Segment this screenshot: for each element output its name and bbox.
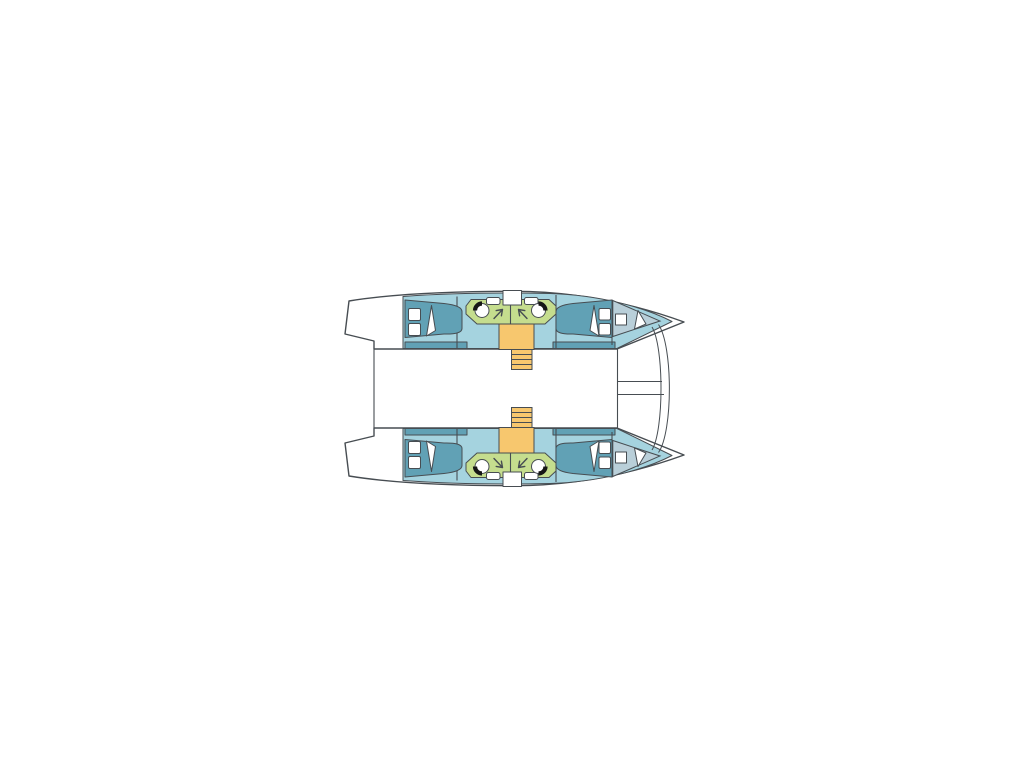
forward-crossbeam <box>659 325 670 453</box>
catamaran-plan <box>0 0 1024 768</box>
starboard-hull <box>345 408 684 487</box>
catamaran-plan-canvas <box>0 0 1024 768</box>
forward-crossbeam <box>652 327 661 450</box>
port-hull <box>345 291 684 370</box>
